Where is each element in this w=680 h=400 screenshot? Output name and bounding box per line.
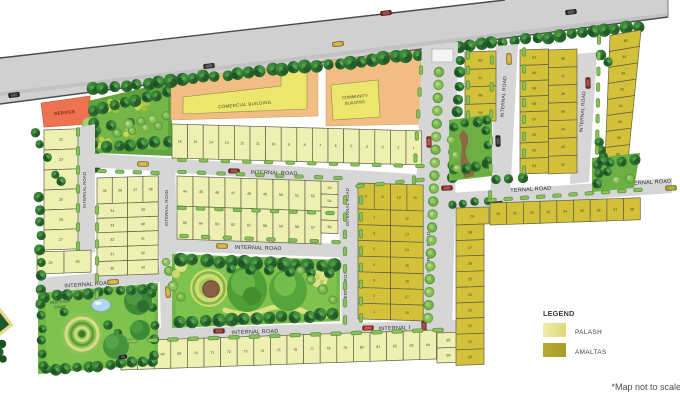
svg-text:25: 25 (468, 277, 472, 281)
svg-text:69: 69 (177, 352, 181, 356)
svg-text:61: 61 (247, 223, 251, 227)
svg-text:16: 16 (178, 139, 182, 143)
svg-text:34: 34 (563, 210, 567, 214)
svg-text:61: 61 (532, 56, 536, 60)
svg-text:65: 65 (183, 221, 187, 225)
svg-text:24: 24 (468, 293, 472, 297)
svg-text:16: 16 (405, 279, 409, 283)
svg-text:8: 8 (365, 195, 367, 199)
svg-text:3: 3 (382, 145, 384, 149)
svg-text:86: 86 (447, 353, 451, 357)
svg-text:30: 30 (110, 266, 114, 270)
svg-text:58: 58 (532, 102, 536, 106)
svg-text:85: 85 (447, 338, 451, 342)
svg-text:27: 27 (59, 238, 63, 242)
svg-text:2: 2 (397, 146, 399, 150)
svg-text:59: 59 (532, 86, 536, 90)
svg-text:46: 46 (561, 92, 565, 96)
svg-text:38: 38 (630, 207, 634, 211)
svg-text:11: 11 (256, 142, 260, 146)
svg-text:41: 41 (619, 104, 623, 108)
svg-text:43: 43 (141, 265, 145, 269)
svg-text:10: 10 (397, 195, 401, 199)
svg-text:75: 75 (277, 348, 281, 352)
svg-text:9: 9 (382, 195, 384, 199)
svg-text:13: 13 (225, 141, 229, 145)
svg-text:83: 83 (410, 344, 414, 348)
svg-text:32: 32 (530, 211, 534, 215)
svg-text:14: 14 (209, 140, 213, 144)
svg-text:45: 45 (561, 110, 565, 114)
svg-text:59: 59 (479, 111, 483, 115)
svg-text:60: 60 (263, 224, 267, 228)
svg-text:29: 29 (49, 261, 53, 265)
svg-text:35: 35 (103, 189, 107, 193)
svg-text:42: 42 (141, 251, 145, 255)
svg-text:61: 61 (479, 76, 483, 80)
svg-text:COURT: COURT (54, 305, 66, 310)
svg-text:44: 44 (622, 55, 626, 59)
svg-text:48: 48 (247, 192, 251, 196)
svg-text:56: 56 (328, 225, 332, 229)
svg-text:33: 33 (546, 210, 550, 214)
svg-text:8: 8 (304, 143, 306, 147)
svg-text:53: 53 (328, 186, 332, 190)
svg-text:9: 9 (288, 143, 290, 147)
svg-text:28: 28 (468, 230, 472, 234)
svg-text:15: 15 (405, 264, 409, 268)
svg-text:59: 59 (279, 224, 283, 228)
svg-text:73: 73 (244, 349, 248, 353)
svg-text:1: 1 (373, 310, 375, 314)
svg-text:*Map not to scale: *Map not to scale (611, 382, 680, 392)
svg-text:49: 49 (263, 192, 267, 196)
svg-text:32: 32 (110, 238, 114, 242)
svg-text:62: 62 (231, 223, 235, 227)
svg-text:12: 12 (240, 141, 244, 145)
svg-text:36: 36 (597, 208, 601, 212)
svg-text:46: 46 (215, 191, 219, 195)
svg-text:39: 39 (617, 136, 621, 140)
svg-text:80: 80 (360, 345, 364, 349)
svg-text:37: 37 (613, 208, 617, 212)
svg-text:LEGEND: LEGEND (543, 309, 575, 318)
svg-text:18: 18 (405, 311, 409, 315)
svg-text:42: 42 (620, 88, 624, 92)
svg-text:22: 22 (59, 138, 63, 142)
svg-text:36: 36 (118, 188, 122, 192)
svg-text:44: 44 (561, 127, 565, 131)
svg-text:INTERNAL ROAD: INTERNAL ROAD (82, 172, 87, 208)
svg-text:79: 79 (343, 346, 347, 350)
svg-text:39: 39 (141, 208, 145, 212)
svg-text:30: 30 (496, 212, 500, 216)
svg-text:13: 13 (405, 232, 409, 236)
svg-text:47: 47 (561, 74, 565, 78)
svg-text:52: 52 (311, 194, 315, 198)
svg-text:70: 70 (194, 351, 198, 355)
svg-text:58: 58 (295, 225, 299, 229)
svg-text:54: 54 (328, 199, 332, 203)
svg-text:40: 40 (618, 120, 622, 124)
svg-text:26: 26 (59, 218, 63, 222)
svg-text:12: 12 (405, 217, 409, 221)
svg-text:5: 5 (373, 247, 375, 251)
svg-text:42: 42 (561, 163, 565, 167)
svg-text:28: 28 (76, 260, 80, 264)
svg-text:84: 84 (426, 343, 430, 347)
svg-text:17: 17 (405, 295, 409, 299)
svg-text:26: 26 (468, 262, 472, 266)
svg-text:15: 15 (193, 140, 197, 144)
svg-text:25: 25 (59, 198, 63, 202)
svg-text:82: 82 (393, 344, 397, 348)
svg-text:29: 29 (470, 214, 474, 218)
svg-text:6: 6 (335, 144, 337, 148)
svg-text:33: 33 (110, 223, 114, 227)
svg-text:21: 21 (468, 340, 472, 344)
svg-text:31: 31 (513, 211, 517, 215)
svg-text:7: 7 (319, 143, 321, 147)
svg-text:60: 60 (532, 71, 536, 75)
svg-text:2: 2 (373, 294, 375, 298)
svg-text:4: 4 (366, 145, 368, 149)
svg-text:43: 43 (621, 71, 625, 75)
svg-text:7: 7 (373, 216, 375, 220)
svg-text:48: 48 (561, 57, 565, 61)
svg-text:51: 51 (295, 193, 299, 197)
svg-text:10: 10 (271, 142, 275, 146)
svg-text:27: 27 (468, 246, 472, 250)
svg-text:41: 41 (141, 237, 145, 241)
svg-text:45: 45 (624, 39, 628, 43)
svg-text:40: 40 (141, 222, 145, 226)
svg-text:31: 31 (110, 252, 114, 256)
svg-text:54: 54 (532, 164, 536, 168)
svg-text:74: 74 (260, 349, 264, 353)
svg-text:71: 71 (210, 351, 214, 355)
svg-text:3: 3 (373, 278, 375, 282)
svg-text:57: 57 (311, 225, 315, 229)
svg-text:81: 81 (376, 345, 380, 349)
svg-text:35: 35 (580, 209, 584, 213)
svg-text:23: 23 (468, 308, 472, 312)
svg-text:63: 63 (215, 222, 219, 226)
svg-text:50: 50 (279, 193, 283, 197)
svg-text:1: 1 (413, 146, 415, 150)
svg-text:AMALTAS: AMALTAS (575, 349, 607, 356)
svg-text:11: 11 (413, 196, 417, 200)
svg-text:76: 76 (293, 348, 297, 352)
svg-text:62: 62 (479, 58, 483, 62)
svg-text:77: 77 (310, 347, 314, 351)
svg-text:6: 6 (373, 231, 375, 235)
svg-text:23: 23 (59, 158, 63, 162)
svg-text:56: 56 (532, 133, 536, 137)
svg-text:60: 60 (479, 93, 483, 97)
svg-text:57: 57 (532, 117, 536, 121)
svg-text:22: 22 (468, 324, 472, 328)
svg-text:4: 4 (373, 263, 375, 267)
svg-text:72: 72 (227, 350, 231, 354)
svg-text:45: 45 (199, 190, 203, 194)
svg-text:47: 47 (231, 191, 235, 195)
svg-text:44: 44 (183, 190, 187, 194)
svg-text:38: 38 (149, 187, 153, 191)
svg-text:55: 55 (532, 148, 536, 152)
svg-text:INTERNAL ROAD: INTERNAL ROAD (164, 190, 169, 226)
svg-text:37: 37 (133, 188, 137, 192)
svg-text:34: 34 (110, 209, 114, 213)
svg-text:5: 5 (350, 144, 352, 148)
svg-text:14: 14 (405, 248, 409, 252)
svg-text:PALASH: PALASH (575, 329, 602, 336)
svg-text:78: 78 (327, 346, 331, 350)
svg-text:43: 43 (561, 145, 565, 149)
svg-text:20: 20 (468, 355, 472, 359)
svg-text:68: 68 (161, 352, 165, 356)
svg-text:64: 64 (199, 222, 203, 226)
